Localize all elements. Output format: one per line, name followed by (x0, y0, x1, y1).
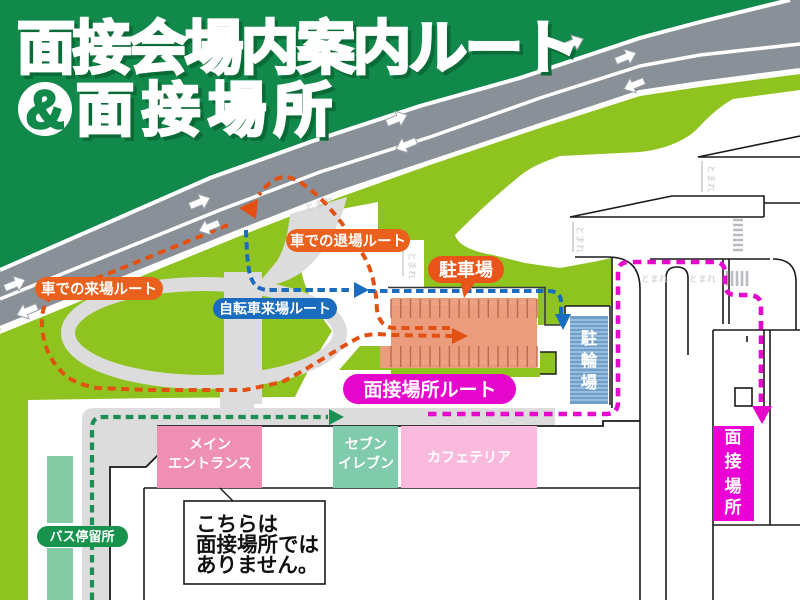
svg-text:面接場所ルート: 面接場所ルート (363, 379, 496, 401)
svg-text:26: 26 (490, 360, 497, 366)
svg-text:とまれ: とまれ (641, 274, 668, 284)
svg-text:20: 20 (431, 360, 438, 366)
svg-text:駐: 駐 (581, 328, 598, 348)
svg-text:イレブン: イレブン (338, 455, 394, 471)
svg-text:18: 18 (412, 360, 419, 366)
svg-text:16: 16 (393, 360, 400, 366)
svg-text:とまれ: とまれ (575, 226, 585, 253)
svg-text:27: 27 (500, 360, 507, 366)
svg-text:24: 24 (470, 360, 477, 366)
svg-text:&: & (26, 80, 65, 140)
svg-text:39: 39 (470, 301, 477, 307)
svg-text:メイン: メイン (189, 436, 231, 452)
svg-text:32: 32 (402, 301, 409, 307)
svg-text:面: 面 (725, 428, 742, 447)
svg-text:ありません。: ありません。 (196, 554, 318, 577)
svg-text:37: 37 (451, 301, 458, 307)
svg-text:38: 38 (461, 301, 468, 307)
svg-text:カフェテリア: カフェテリア (427, 449, 511, 465)
svg-text:場: 場 (581, 373, 598, 392)
svg-text:33: 33 (412, 301, 419, 307)
svg-text:接: 接 (725, 451, 742, 471)
svg-text:30: 30 (529, 360, 536, 366)
svg-text:19: 19 (422, 360, 429, 366)
svg-text:31: 31 (393, 301, 400, 307)
svg-text:35: 35 (431, 301, 438, 307)
svg-text:面接場所: 面接場所 (76, 78, 340, 143)
svg-text:所: 所 (725, 498, 742, 517)
svg-text:34: 34 (422, 301, 429, 307)
svg-text:45: 45 (529, 301, 536, 307)
svg-text:23: 23 (461, 360, 468, 366)
svg-text:とまれ: とまれ (706, 165, 716, 192)
svg-text:自転車来場ルート: 自転車来場ルート (219, 301, 331, 317)
svg-text:場: 場 (725, 477, 742, 496)
svg-text:車での来場ルート: 車での来場ルート (41, 280, 157, 298)
svg-text:エントランス: エントランス (168, 455, 252, 471)
svg-text:29: 29 (519, 360, 526, 366)
svg-text:28: 28 (509, 360, 516, 366)
svg-text:とまれ: とまれ (689, 274, 716, 284)
svg-text:とまれ: とまれ (407, 252, 417, 279)
svg-text:17: 17 (402, 360, 409, 366)
svg-text:41: 41 (490, 301, 497, 307)
svg-text:面接会場内案内ルート: 面接会場内案内ルート (17, 16, 577, 81)
svg-text:バス停留所: バス停留所 (49, 529, 114, 544)
svg-text:43: 43 (509, 301, 516, 307)
svg-text:22: 22 (451, 360, 458, 366)
svg-text:車での退場ルート: 車での退場ルート (290, 233, 406, 250)
svg-text:輪: 輪 (581, 350, 598, 370)
svg-text:25: 25 (480, 360, 487, 366)
svg-text:セブン: セブン (345, 436, 387, 452)
svg-text:44: 44 (519, 301, 526, 307)
svg-text:40: 40 (480, 301, 487, 307)
svg-text:42: 42 (500, 301, 507, 307)
svg-text:36: 36 (441, 301, 448, 307)
svg-text:21: 21 (441, 360, 448, 366)
svg-text:駐車場: 駐車場 (439, 259, 493, 280)
